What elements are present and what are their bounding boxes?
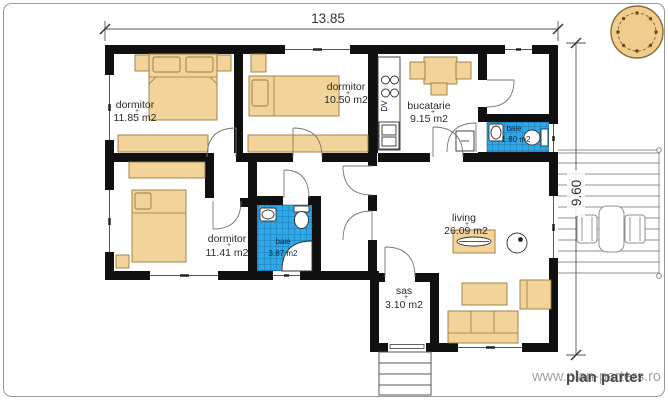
bedroom3-furniture [116, 162, 205, 268]
dimension-height: 9.60 [566, 38, 586, 360]
armchair [520, 280, 551, 309]
watermark-brand: plan parter [566, 369, 644, 386]
toilet-tank [541, 129, 548, 146]
door-bedroom3 [213, 201, 241, 229]
page-border [4, 4, 665, 397]
door-storage [487, 80, 514, 107]
entrance-steps [379, 352, 431, 395]
window [549, 196, 558, 258]
pillow [135, 193, 151, 209]
sofa [448, 311, 518, 343]
burner [391, 76, 399, 84]
terrace-chair-left [577, 215, 597, 243]
bedroom2-area: 10.50 m2 [324, 94, 368, 106]
living-area: 26.09 m2 [444, 225, 488, 237]
bath-main-name: baie [275, 237, 291, 246]
side-table [507, 233, 527, 253]
height-dimension-label: 9.60 [569, 180, 584, 206]
pillow [153, 57, 180, 72]
door-bath-main [284, 170, 309, 198]
chair [410, 62, 425, 79]
compass-icon [611, 6, 663, 58]
bath-small-area: 1.80 m2 [502, 135, 531, 144]
burner [391, 89, 399, 97]
coffee-table [462, 283, 507, 305]
watermark: www.plan-parters.ro plan parter [531, 369, 661, 386]
bedroom3-area: 11.41 m2 [206, 247, 249, 259]
terrace-table [599, 206, 624, 252]
vestibule-area: 3.10 m2 [385, 299, 423, 311]
pillow [186, 57, 213, 72]
wardrobe [248, 135, 368, 152]
kitchen-table [424, 57, 457, 84]
plant [518, 237, 523, 242]
window [285, 45, 350, 54]
deck-post [657, 148, 662, 153]
bath-small-name: baie [506, 124, 522, 133]
kitchen-area: 9.15 m2 [410, 113, 448, 125]
living-furniture [448, 230, 551, 343]
nightstand [135, 55, 149, 71]
burner [382, 76, 390, 84]
bedroom1-area: 11.85 m2 [114, 112, 157, 124]
burner [382, 89, 390, 97]
dishwasher-label: DV [380, 100, 389, 112]
sink-basin [382, 125, 396, 135]
toilet [295, 212, 309, 229]
door-hall-living-2 [343, 211, 372, 240]
dresser [118, 135, 208, 152]
nightstand [116, 255, 129, 268]
nightstand [217, 55, 231, 71]
front-door [388, 343, 426, 352]
window [458, 343, 522, 352]
terrace-chair-right [625, 215, 645, 243]
chair [431, 83, 447, 95]
door-vestibule [385, 247, 415, 277]
chair [456, 62, 471, 79]
bath-main-area: 3.87 m2 [269, 249, 298, 258]
window [105, 75, 114, 140]
deck-post [657, 274, 662, 279]
dresser [129, 162, 205, 178]
window [273, 271, 300, 280]
pillow [252, 80, 268, 106]
window [549, 124, 558, 152]
kitchen-name: bucatarie [407, 100, 450, 112]
dimension-width: 13.85 [100, 11, 563, 41]
nightstand [251, 54, 266, 72]
door-hall-living-1 [343, 166, 372, 195]
sink-basin [382, 137, 396, 146]
window [150, 271, 218, 280]
door-bedroom1 [207, 128, 236, 157]
floor-plan-page: DV [0, 0, 668, 400]
window [505, 45, 532, 54]
width-dimension-label: 13.85 [311, 11, 345, 26]
floor-plan-drawing: DV [0, 0, 668, 400]
window [105, 190, 114, 252]
